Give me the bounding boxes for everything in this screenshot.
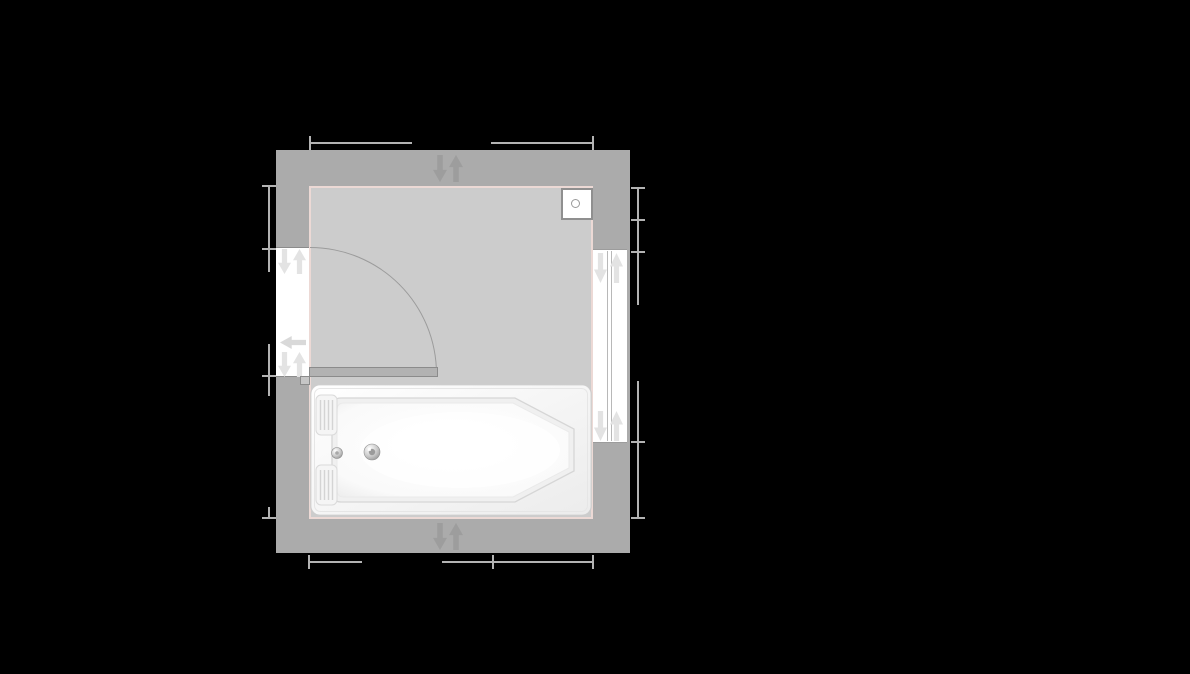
dimension-left-tick: [262, 185, 276, 187]
dimension-bottom-tick: [308, 555, 310, 569]
dimension-top-segment: [310, 142, 412, 144]
planner-canvas[interactable]: [0, 0, 1190, 674]
dimension-left-segment: [268, 186, 270, 272]
window-pane-line: [607, 251, 608, 441]
dimension-right-tick: [631, 517, 645, 519]
dimension-bottom-segment: [442, 561, 593, 563]
door-leaf[interactable]: [309, 367, 438, 377]
dimension-left-tick: [262, 248, 276, 250]
dimension-left-tick: [262, 517, 276, 519]
dimension-bottom-tick: [592, 555, 594, 569]
dimension-left-segment: [268, 344, 270, 396]
dimension-right-tick: [631, 441, 645, 443]
bathtub-drawing: [310, 384, 592, 516]
bathtub[interactable]: [310, 384, 592, 516]
dimension-right-segment: [637, 381, 639, 518]
window-pane-line: [611, 251, 612, 441]
door-hinge: [300, 376, 310, 385]
dimension-bottom-segment: [309, 561, 362, 563]
corner-fixture-knob-icon: [571, 199, 580, 208]
dimension-right-tick: [631, 251, 645, 253]
dimension-bottom-tick: [492, 555, 494, 569]
dimension-right-tick: [631, 187, 645, 189]
dimension-top-segment: [491, 142, 593, 144]
dimension-left-tick: [262, 375, 276, 377]
dimension-top-tick: [592, 136, 594, 150]
dimension-top-tick: [309, 136, 311, 150]
dimension-right-tick: [631, 219, 645, 221]
dimension-right-segment: [637, 188, 639, 305]
